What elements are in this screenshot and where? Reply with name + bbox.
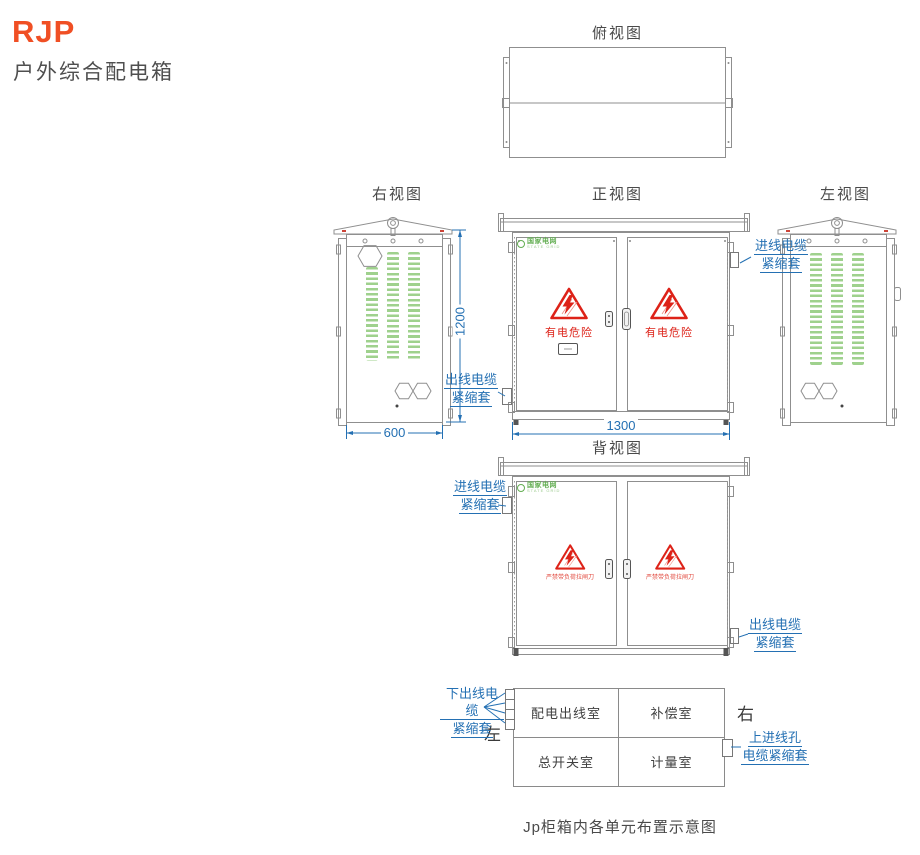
vent-louver-column — [366, 267, 378, 361]
door-latch-icon — [606, 312, 613, 327]
inlet-gland-tab — [731, 253, 739, 268]
door-handle-icon — [606, 560, 613, 579]
door-handle-icon — [895, 288, 901, 301]
door-handle-icon — [624, 560, 631, 579]
dim-width-600: 600 — [346, 425, 443, 440]
inlet-cable-sleeve-label: 进线电缆 紧缩套 — [450, 478, 510, 514]
state-grid-logo-icon — [517, 484, 525, 492]
cell-compensation-room: 补偿室 — [619, 689, 724, 738]
roof — [334, 219, 452, 234]
roof — [501, 463, 748, 476]
inlet-cable-sleeve-label: 进线电缆 紧缩套 — [752, 237, 810, 273]
top-view-title: 俯视图 — [555, 22, 680, 43]
cable-gland-hex-icon — [801, 383, 819, 399]
right-side-marker: 右 — [737, 700, 754, 725]
top-view-lineart — [497, 44, 739, 162]
outlet-gland-tab — [731, 629, 739, 644]
outlet-cable-sleeve-label: 出线电缆 紧缩套 — [441, 371, 501, 407]
state-grid-logo: 国家电网STATE GRID — [517, 238, 560, 249]
dim-width-1300: 1300 — [571, 418, 671, 433]
back-view-drawing: 国家电网STATE GRID 严禁带负荷拉闸刀 严禁带负荷拉闸刀 — [488, 455, 768, 670]
logo-subtext: STATE GRID — [527, 245, 560, 249]
cell-metering-room: 计量室 — [619, 738, 724, 787]
logo-subtext: STATE GRID — [527, 489, 560, 493]
brand-logo: RJP — [12, 14, 75, 50]
product-title: 户外综合配电箱 — [13, 56, 174, 86]
left-view-title: 左视图 — [783, 183, 908, 204]
right-view-drawing: 600 1200 — [328, 211, 478, 446]
cell-distribution-outlet-room: 配电出线室 — [514, 689, 619, 738]
unit-layout-table: 配电出线室 补偿室 总开关室 计量室 — [513, 688, 725, 787]
warning-triangle-icon — [656, 545, 684, 568]
top-view-drawing — [497, 44, 739, 162]
cable-gland-hex-icon — [819, 383, 837, 399]
no-load-switching-label: 严禁带负荷拉闸刀 — [639, 572, 701, 581]
dim-height-1200: 1200 — [453, 294, 468, 350]
danger-electric-label: 有电危险 — [537, 324, 601, 340]
vent-louver-column — [810, 253, 822, 365]
cable-gland-hex-icon — [395, 383, 413, 399]
top-inlet-gland-tab — [722, 739, 733, 757]
warning-triangle-icon — [556, 545, 584, 568]
cable-gland-hex-icon — [413, 383, 431, 399]
front-view-drawing: 国家电网STATE GRID 有电危险 有电危险 1300 — [488, 210, 768, 450]
outlet-cable-sleeve-label: 出线电缆 紧缩套 — [746, 616, 804, 652]
danger-electric-label: 有电危险 — [637, 324, 701, 340]
vent-louver-column — [387, 252, 399, 361]
vent-louver-column — [831, 253, 843, 365]
top-inlet-sleeve-label: 上进线孔 电缆紧缩套 — [740, 729, 810, 765]
roof — [778, 219, 896, 234]
warning-triangle-icon — [552, 289, 587, 318]
state-grid-logo-icon — [517, 240, 525, 248]
no-load-switching-label: 严禁带负荷拉闸刀 — [539, 572, 601, 581]
state-grid-logo: 国家电网STATE GRID — [517, 482, 560, 493]
bottom-outlet-gland-tab — [505, 719, 515, 730]
right-view-title: 右视图 — [335, 183, 460, 204]
cell-main-switch-room: 总开关室 — [514, 738, 619, 787]
vent-louver-column — [408, 252, 420, 361]
front-view-title: 正视图 — [555, 183, 680, 204]
catalog-page: RJP 户外综合配电箱 俯视图 右视图 正视图 左视图 背视图 — [0, 0, 920, 855]
warning-triangle-icon — [652, 289, 687, 318]
vent-louver-column — [852, 253, 864, 365]
roof — [501, 219, 748, 232]
layout-diagram-caption: Jp柜箱内各单元布置示意图 — [480, 816, 760, 837]
bottom-outlet-sleeve-label: 下出线电缆 紧缩套 — [440, 685, 504, 738]
cable-gland-hex-icon — [358, 246, 382, 267]
